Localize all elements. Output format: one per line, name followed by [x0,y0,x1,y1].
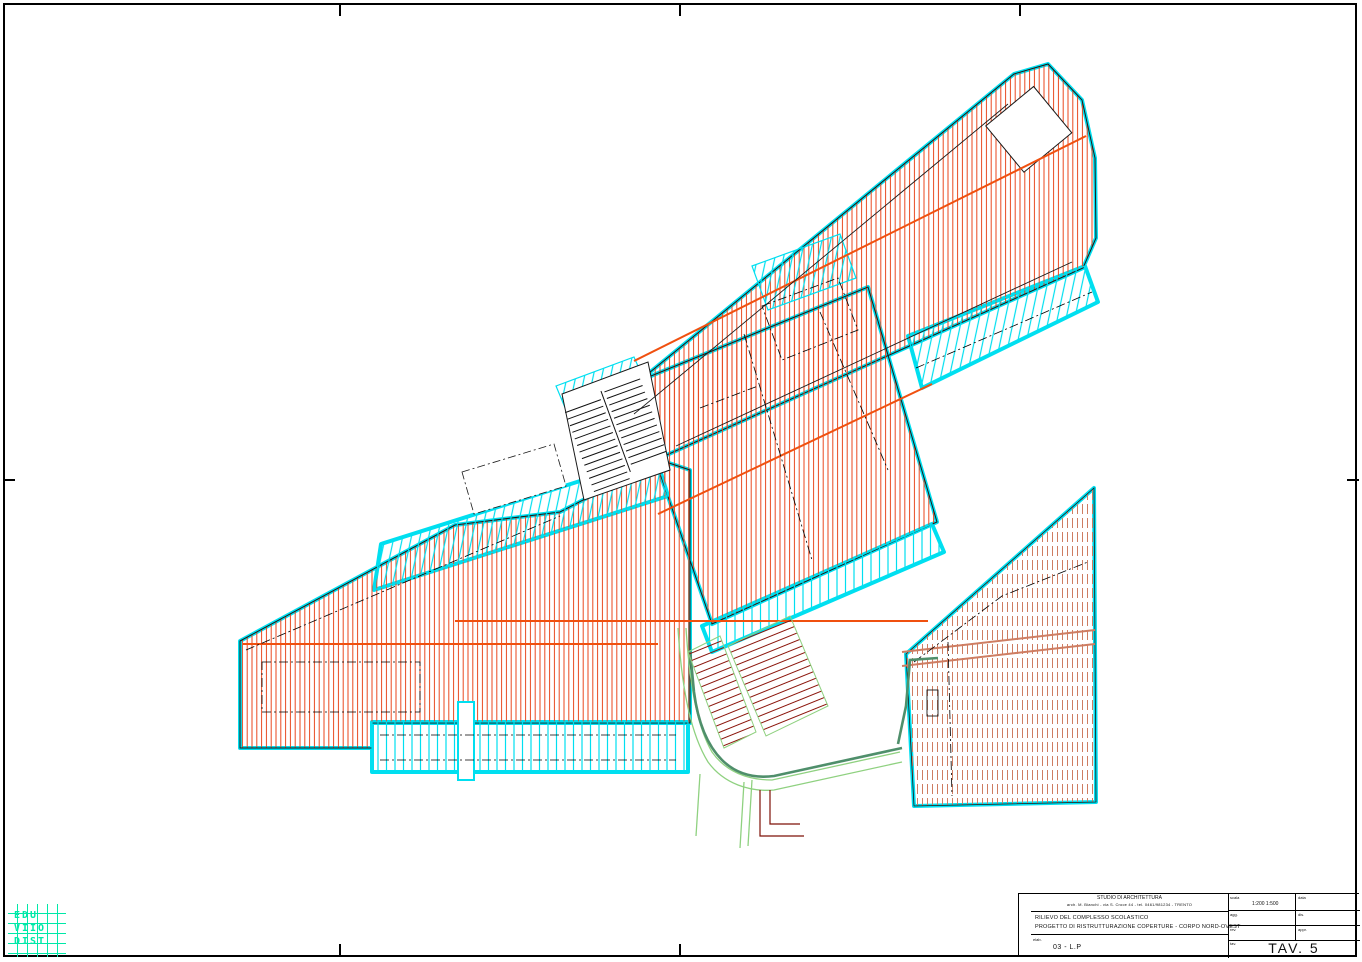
update-label: agg. [1230,912,1238,917]
titleblock-left: STUDIO DI ARCHITETTURA arch. M. Bianchi … [1031,894,1228,957]
studio-header-line2: arch. M. Bianchi - via S. Croce 44 - tel… [1031,902,1228,907]
title-block: STUDIO DI ARCHITETTURA arch. M. Bianchi … [1018,893,1359,957]
object-label: elab. [1033,937,1042,942]
studio-header-line1: STUDIO DI ARCHITETTURA [1031,895,1228,902]
object-value: 03 - L.P [1053,944,1082,951]
scale-value: 1:200 1:500 [1252,901,1278,907]
courtyard-darkred-lines [760,790,804,836]
date-label: data [1298,895,1306,900]
sheet-number: TAV. 5 [1228,940,1360,956]
studio-header: STUDIO DI ARCHITETTURA arch. M. Bianchi … [1031,895,1228,911]
drawing-title-line2: PROGETTO DI RISTRUTTURAZIONE COPERTURE -… [1035,923,1227,932]
logo-row-3: DIST [8,935,66,948]
approved-label: appr. [1298,927,1307,932]
drawn-label: dis. [1298,912,1304,917]
logo-row-1: EDU [8,909,66,922]
logo-row-2: VIIO [8,922,66,935]
revision-label: rev. [1230,927,1236,932]
studio-logo: EDU VIIO DIST [8,904,66,957]
drawing-sheet: EDU VIIO DIST STUDIO DI ARCHITETTURA arc… [0,0,1362,962]
site-plan-drawing [0,0,1362,962]
titleblock-fields: scala 1:200 1:500 data agg. dis. rev. ap… [1228,894,1360,957]
scale-label: scala [1230,895,1239,900]
drawing-title: RILIEVO DEL COMPLESSO SCOLASTICO PROGETT… [1035,914,1227,932]
drawing-title-line1: RILIEVO DEL COMPLESSO SCOLASTICO [1035,914,1227,923]
